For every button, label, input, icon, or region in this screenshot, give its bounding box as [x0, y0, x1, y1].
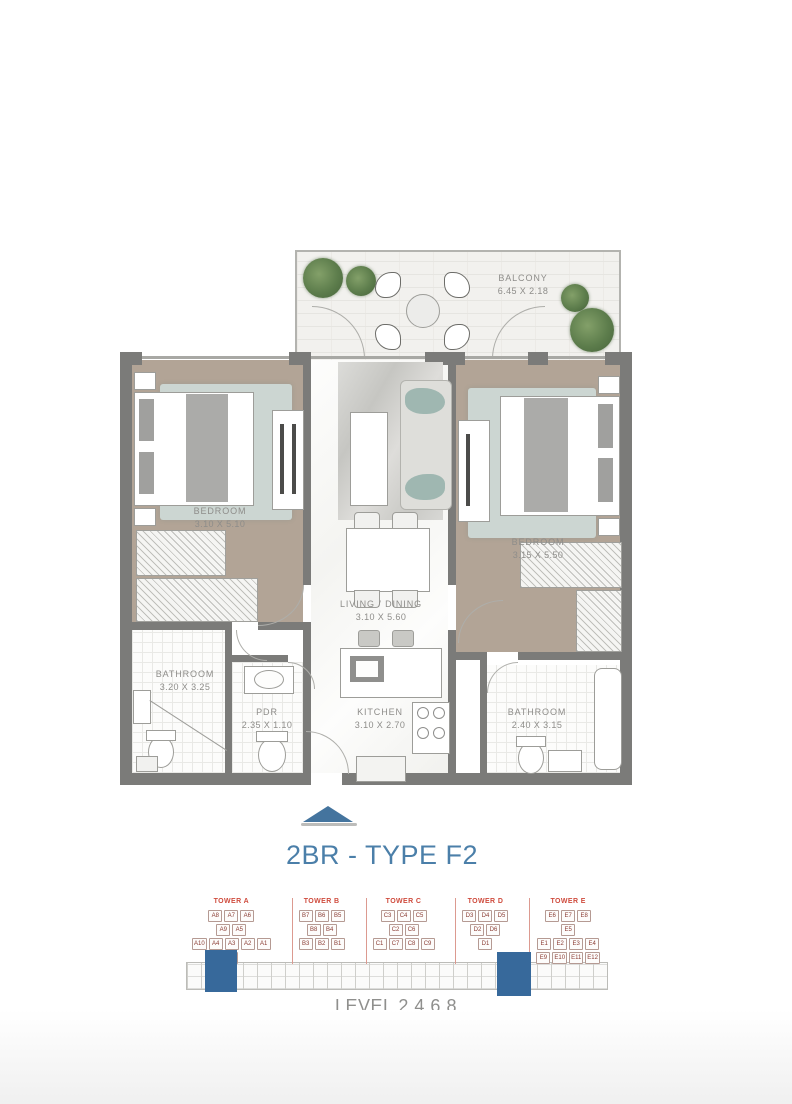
bed-pillow	[139, 452, 154, 494]
key-plan-unit-row: A8A7A6	[208, 910, 254, 922]
key-plan-unit: D3	[462, 910, 476, 922]
toilet	[258, 738, 286, 772]
key-plan-tower: TOWER BB7B6B5B8B4B3B2B1	[292, 898, 351, 964]
wall	[120, 352, 132, 785]
key-plan-tower-label: TOWER C	[386, 898, 422, 905]
key-plan-tower-label: TOWER D	[468, 898, 504, 905]
room-label-kitchen: KITCHEN 3.10 X 2.70	[320, 706, 440, 731]
bar-stool	[358, 630, 380, 647]
sofa-cushion	[405, 388, 445, 414]
room-dims: 3.10 X 5.10	[160, 518, 280, 531]
key-plan-unit: C4	[397, 910, 411, 922]
room-label-bathroom2: BATHROOM 2.40 X 3.15	[482, 706, 592, 731]
key-plan-unit: C1	[373, 938, 387, 950]
key-plan-unit: E8	[577, 910, 591, 922]
wall	[605, 352, 632, 365]
sink-basin	[254, 670, 284, 689]
key-plan-unit: B5	[331, 910, 345, 922]
room-name: KITCHEN	[320, 706, 440, 719]
dresser	[136, 530, 226, 576]
shower-drain	[136, 756, 158, 772]
bed-blanket	[186, 394, 228, 502]
north-arrow-icon	[303, 806, 353, 822]
room-label-bedroom1: BEDROOM 3.10 X 5.10	[160, 505, 280, 530]
key-plan-unit: C9	[421, 938, 435, 950]
key-plan-unit: C6	[405, 924, 419, 936]
bathtub	[594, 668, 622, 770]
key-plan-unit-row: A9A5	[216, 924, 246, 936]
key-plan-unit-row: E5	[561, 924, 575, 936]
sofa-cushion	[405, 474, 445, 500]
room-label-living: LIVING / DINING 3.10 X 5.60	[316, 598, 446, 623]
key-plan-unit: E6	[545, 910, 559, 922]
toilet-tank	[516, 736, 546, 747]
key-plan-unit: B1	[331, 938, 345, 950]
key-plan-unit: B8	[307, 924, 321, 936]
key-plan-unit: B2	[315, 938, 329, 950]
wardrobe-handle	[280, 424, 284, 494]
key-plan-unit: B3	[299, 938, 313, 950]
sliding-door-line	[548, 356, 605, 359]
plant-icon	[346, 266, 376, 296]
key-plan-unit: D4	[478, 910, 492, 922]
key-plan-unit: D5	[494, 910, 508, 922]
wall	[120, 773, 306, 785]
key-plan-unit: B4	[323, 924, 337, 936]
room-dims: 2.35 X 1.10	[212, 719, 322, 732]
bed-pillow	[598, 404, 613, 448]
bar-stool	[392, 630, 414, 647]
wardrobe-handle	[466, 434, 470, 506]
key-plan-unit-row: D2D6	[470, 924, 500, 936]
north-arrow-base	[301, 823, 357, 826]
room-dims: 6.45 X 2.18	[468, 285, 578, 298]
wall	[528, 352, 548, 365]
room-dims: 3.15 X 5.50	[478, 549, 598, 562]
key-plan-unit-row: B3B2B1	[299, 938, 345, 950]
bed-blanket	[524, 398, 568, 512]
wall	[225, 622, 232, 785]
key-plan-unit: B6	[315, 910, 329, 922]
dresser	[576, 590, 622, 652]
key-plan: TOWER AA8A7A6A9A5A10A4A3A2A1A11TOWER BB7…	[186, 898, 606, 998]
key-plan-unit: E10	[552, 952, 567, 964]
window-line	[142, 356, 295, 359]
room-label-bathroom1: BATHROOM 3.20 X 3.25	[130, 668, 240, 693]
key-plan-unit: E11	[569, 952, 583, 964]
kitchen-island	[356, 756, 406, 782]
key-plan-unit-row: E9E10E11E12	[536, 952, 600, 964]
room-dims: 3.10 X 5.60	[316, 611, 446, 624]
key-plan-unit: E3	[569, 938, 583, 950]
plant-icon	[570, 308, 614, 352]
highlighted-unit-marker	[205, 950, 237, 992]
key-plan-unit-row: D1	[478, 938, 492, 950]
kitchen-sink-basin	[356, 661, 378, 677]
key-plan-unit: E5	[561, 924, 575, 936]
key-plan-unit: C3	[381, 910, 395, 922]
wall	[120, 622, 232, 630]
key-plan-unit: A5	[232, 924, 246, 936]
coffee-table	[350, 412, 388, 506]
key-plan-unit: A6	[240, 910, 254, 922]
room-name: LIVING / DINING	[316, 598, 446, 611]
bed-pillow	[598, 458, 613, 502]
key-plan-unit-row: C2C6	[389, 924, 419, 936]
sliding-door-line	[311, 356, 425, 359]
wardrobe	[272, 410, 304, 510]
key-plan-unit: D2	[470, 924, 484, 936]
balcony-table	[406, 294, 440, 328]
toilet-tank	[146, 730, 176, 741]
key-plan-unit-row: E6E7E8	[545, 910, 591, 922]
key-plan-unit: B7	[299, 910, 313, 922]
page-bottom-fade	[0, 1010, 792, 1104]
key-plan-unit-row: B8B4	[307, 924, 337, 936]
key-plan-unit-row: D3D4D5	[462, 910, 508, 922]
room-dims: 3.20 X 3.25	[130, 681, 240, 694]
room-name: BALCONY	[468, 272, 578, 285]
key-plan-unit: E12	[585, 952, 600, 964]
key-plan-unit: A3	[225, 938, 239, 950]
key-plan-unit-row: B7B6B5	[299, 910, 345, 922]
bed-pillow	[139, 399, 154, 441]
key-plan-unit: E7	[561, 910, 575, 922]
key-plan-unit-row: C3C4C5	[381, 910, 427, 922]
key-plan-unit: A8	[208, 910, 222, 922]
key-plan-unit: E4	[585, 938, 599, 950]
sliding-door-line	[465, 356, 528, 359]
key-plan-tower: TOWER CC3C4C5C2C6C1C7C8C9	[366, 898, 441, 964]
wardrobe	[458, 420, 490, 522]
plan-title: 2BR - TYPE F2	[76, 840, 688, 871]
key-plan-unit: A9	[216, 924, 230, 936]
key-plan-unit: E2	[553, 938, 567, 950]
room-name: BATHROOM	[482, 706, 592, 719]
key-plan-unit: A7	[224, 910, 238, 922]
nightstand	[598, 376, 620, 394]
bathroom-sink	[133, 690, 151, 724]
room-dims: 3.10 X 2.70	[320, 719, 440, 732]
key-plan-unit: A1	[257, 938, 271, 950]
room-name: BEDROOM	[160, 505, 280, 518]
bench	[136, 578, 258, 622]
room-label-pdr: PDR 2.35 X 1.10	[212, 706, 322, 731]
bathroom-sink	[548, 750, 582, 772]
wall	[120, 352, 142, 365]
key-plan-unit: E9	[536, 952, 550, 964]
plant-icon	[303, 258, 343, 298]
room-name: BATHROOM	[130, 668, 240, 681]
wardrobe-handle	[292, 424, 296, 494]
key-plan-tower: TOWER EE6E7E8E5E1E2E3E4E9E10E11E12	[529, 898, 606, 964]
wall	[518, 652, 632, 660]
key-plan-unit-row: E1E2E3E4	[537, 938, 599, 950]
room-dims: 2.40 X 3.15	[482, 719, 592, 732]
key-plan-unit: C8	[405, 938, 419, 950]
key-plan-unit: E1	[537, 938, 551, 950]
key-plan-tower-label: TOWER A	[214, 898, 249, 905]
key-plan-tower-label: TOWER E	[551, 898, 586, 905]
key-plan-unit: D6	[486, 924, 500, 936]
room-name: BEDROOM	[478, 536, 598, 549]
key-plan-unit: C7	[389, 938, 403, 950]
nightstand	[134, 508, 156, 526]
key-plan-unit-row: A10A4A3A2A1	[192, 938, 271, 950]
wall	[456, 652, 480, 660]
key-plan-unit: D1	[478, 938, 492, 950]
room-name: PDR	[212, 706, 322, 719]
key-plan-unit: C2	[389, 924, 403, 936]
nightstand	[598, 518, 620, 536]
key-plan-unit-row: C1C7C8C9	[373, 938, 435, 950]
floorplan-page: BALCONY 6.45 X 2.18	[0, 0, 792, 1104]
key-plan-unit: A2	[241, 938, 255, 950]
dining-table	[346, 528, 430, 592]
key-plan-towers: TOWER AA8A7A6A9A5A10A4A3A2A1A11TOWER BB7…	[186, 898, 606, 964]
key-plan-lower-units-strip	[186, 962, 608, 990]
wall	[303, 352, 311, 585]
highlighted-unit-marker	[497, 952, 531, 996]
key-plan-unit: A10	[192, 938, 207, 950]
room-label-balcony: BALCONY 6.45 X 2.18	[468, 272, 578, 297]
toilet-tank	[256, 731, 288, 742]
nightstand	[134, 372, 156, 390]
room-label-bedroom2: BEDROOM 3.15 X 5.50	[478, 536, 598, 561]
key-plan-unit: C5	[413, 910, 427, 922]
key-plan-tower-label: TOWER B	[304, 898, 340, 905]
key-plan-unit: A4	[209, 938, 223, 950]
